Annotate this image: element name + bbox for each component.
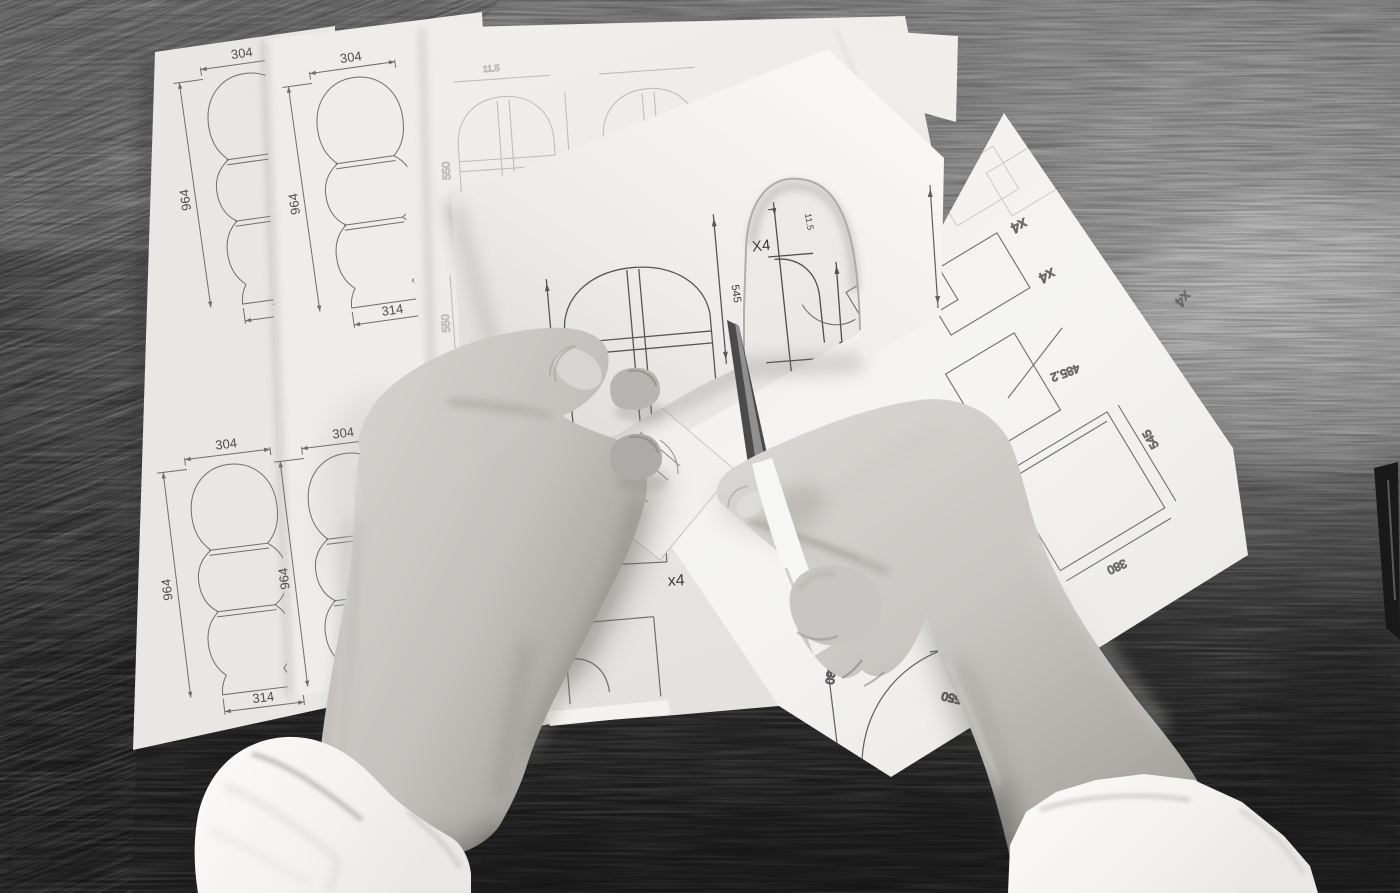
svg-text:550: 550 [440,314,453,333]
svg-text:11.5: 11.5 [483,63,501,74]
svg-text:550: 550 [440,161,453,180]
svg-text:545: 545 [729,284,743,304]
svg-text:x4: x4 [667,572,685,590]
